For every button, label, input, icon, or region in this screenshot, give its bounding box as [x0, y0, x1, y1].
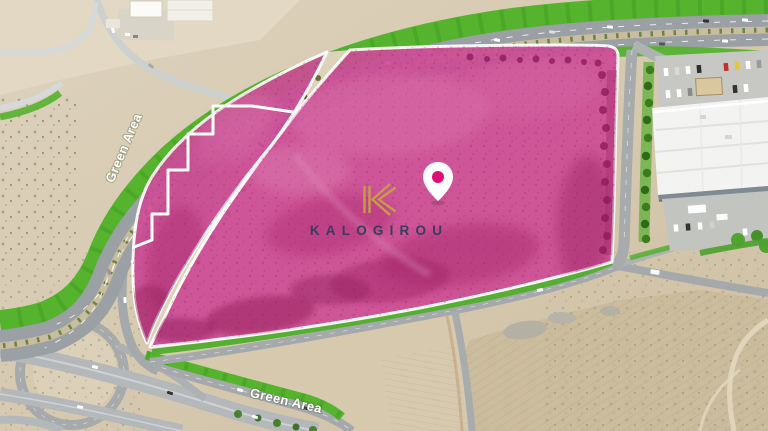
pin-dot — [432, 171, 444, 183]
kalogirou-wordmark: KALOGIROU — [310, 223, 448, 238]
satellite-map-image: Green Area Green Area KALOGIROU — [0, 0, 768, 431]
building — [130, 1, 162, 17]
small-building — [696, 77, 723, 95]
map-canvas: Green Area Green Area KALOGIROU — [0, 0, 768, 431]
warehouse-building — [652, 97, 768, 195]
